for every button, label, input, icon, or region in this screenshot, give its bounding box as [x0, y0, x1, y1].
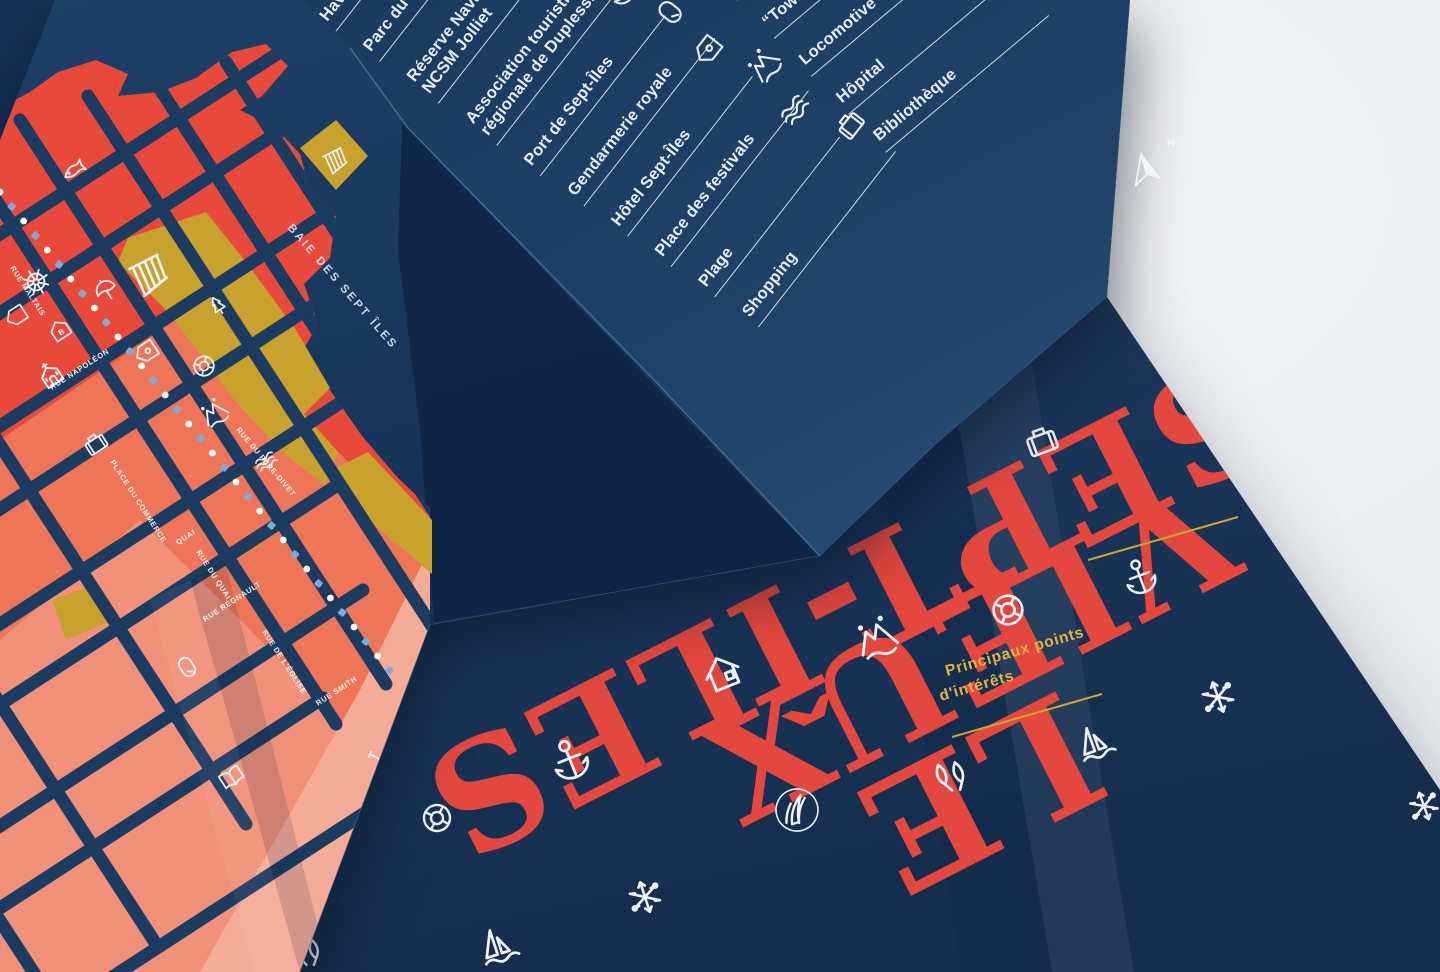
- north-arrow-icon: [1122, 143, 1175, 196]
- brochure-mockup-scene: SEPT-ÎLES VIEUX LE Principaux points d'i…: [0, 0, 1440, 972]
